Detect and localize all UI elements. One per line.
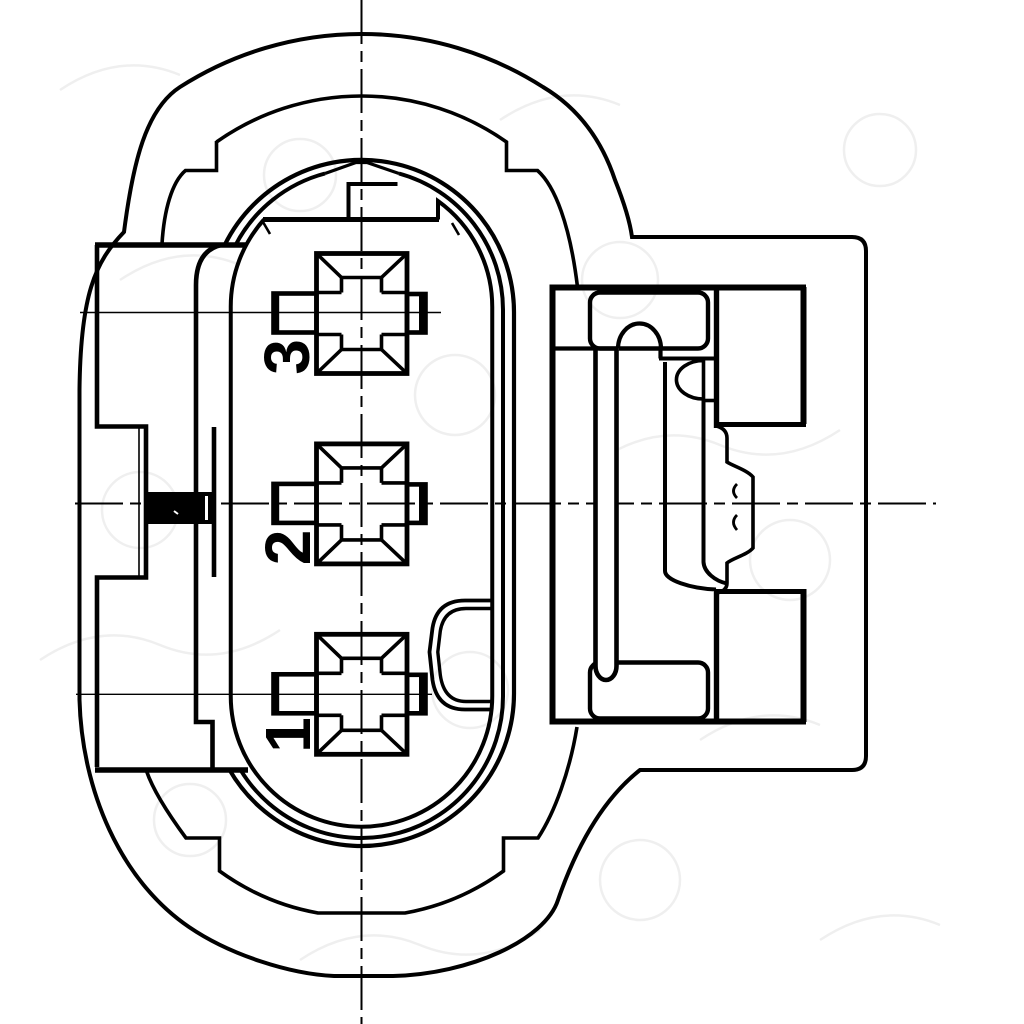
svg-text:3: 3 [251,339,323,375]
svg-text:2: 2 [252,530,324,566]
svg-text:1: 1 [252,717,324,753]
